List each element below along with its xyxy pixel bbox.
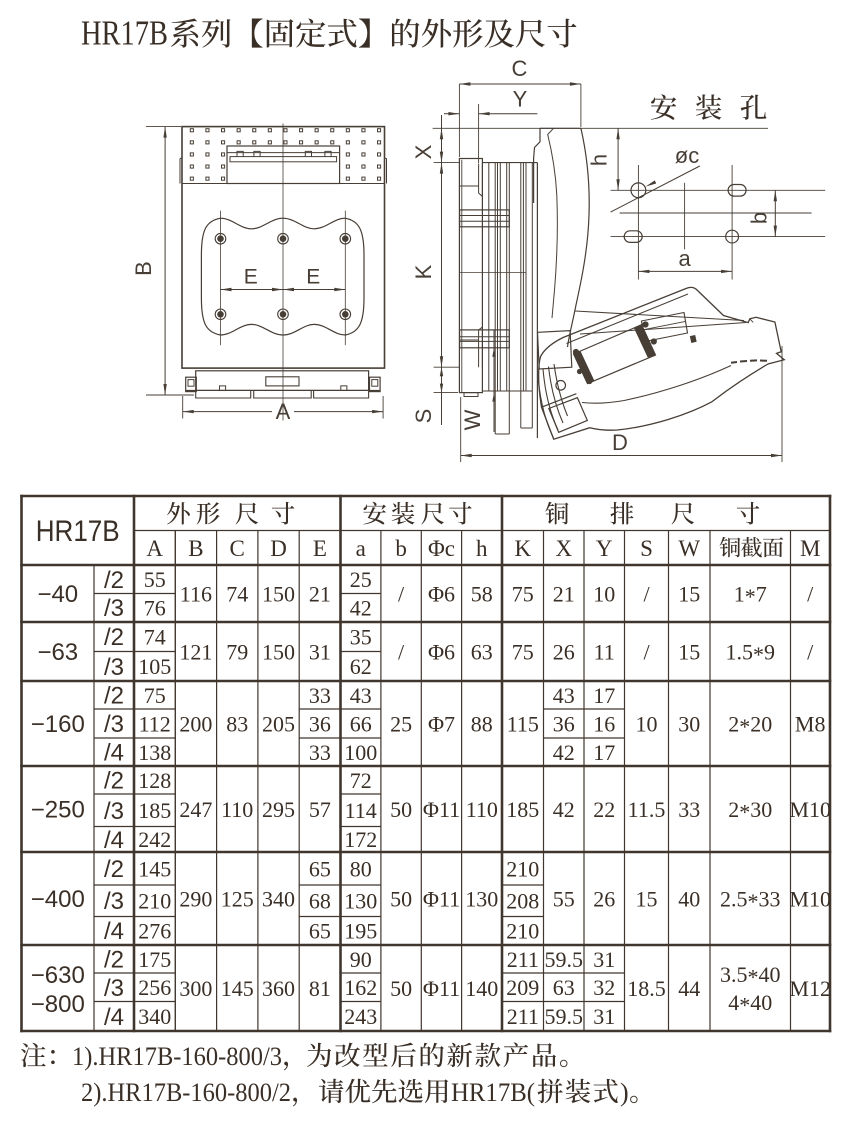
svg-text:−40: −40	[37, 581, 78, 608]
svg-text:10: 10	[593, 581, 615, 606]
svg-text:26: 26	[553, 639, 575, 664]
svg-text:C: C	[512, 56, 528, 81]
svg-text:121: 121	[179, 639, 212, 664]
svg-text:55: 55	[553, 886, 575, 911]
svg-text:62: 62	[350, 654, 372, 679]
svg-text:79: 79	[226, 639, 248, 664]
svg-text:83: 83	[226, 711, 248, 736]
svg-text:200: 200	[179, 711, 212, 736]
svg-text:68: 68	[309, 889, 331, 914]
svg-text:50: 50	[390, 886, 412, 911]
svg-text:X: X	[411, 144, 436, 159]
svg-text:36: 36	[309, 711, 331, 736]
svg-text:D: D	[270, 536, 287, 561]
svg-text:63: 63	[471, 639, 493, 664]
svg-text:/3: /3	[104, 888, 124, 915]
svg-text:HR17B(: HR17B(	[451, 1078, 535, 1107]
svg-text:−250: −250	[31, 797, 85, 824]
svg-text:/2: /2	[104, 856, 124, 883]
svg-text:2*20: 2*20	[728, 711, 772, 739]
svg-text:58: 58	[471, 581, 493, 606]
svg-text:h: h	[587, 154, 612, 166]
svg-text:242: 242	[138, 827, 171, 852]
svg-text:S: S	[411, 409, 436, 424]
svg-text:256: 256	[138, 975, 171, 1000]
svg-text:31: 31	[593, 1004, 615, 1029]
svg-text:44: 44	[678, 976, 700, 1001]
svg-text:162: 162	[344, 975, 377, 1000]
svg-text:72: 72	[350, 768, 372, 793]
svg-text:130: 130	[344, 889, 377, 914]
svg-text:110: 110	[466, 797, 498, 822]
svg-text:−630: −630	[31, 962, 85, 989]
svg-text:/4: /4	[104, 1004, 124, 1031]
svg-text:21: 21	[553, 581, 575, 606]
svg-text:211: 211	[507, 947, 539, 972]
svg-text:340: 340	[262, 886, 295, 911]
svg-text:18.5: 18.5	[627, 976, 666, 1001]
svg-text:300: 300	[179, 976, 212, 1001]
svg-text:110: 110	[221, 797, 253, 822]
svg-text:M10: M10	[789, 797, 831, 822]
svg-text:M10: M10	[789, 886, 831, 911]
svg-text:33: 33	[309, 683, 331, 708]
svg-text:2).HR17B-160-800/2: 2).HR17B-160-800/2	[81, 1078, 291, 1107]
svg-text:42: 42	[350, 596, 372, 621]
svg-text:b: b	[747, 212, 772, 224]
svg-text:22: 22	[593, 797, 615, 822]
svg-text:31: 31	[593, 947, 615, 972]
svg-text:2.5*33: 2.5*33	[720, 886, 781, 914]
svg-text:43: 43	[350, 683, 372, 708]
svg-text:/4: /4	[104, 918, 124, 945]
svg-text:205: 205	[262, 711, 295, 736]
svg-text:3.5*40: 3.5*40	[720, 962, 781, 990]
svg-text:145: 145	[221, 976, 254, 1001]
svg-text:E: E	[306, 266, 320, 289]
svg-text:125: 125	[221, 886, 254, 911]
svg-text:11: 11	[594, 639, 615, 664]
svg-text:74: 74	[144, 625, 166, 650]
svg-text:65: 65	[309, 919, 331, 944]
svg-text:138: 138	[138, 740, 171, 765]
svg-text:S: S	[640, 536, 653, 561]
svg-text:42: 42	[553, 797, 575, 822]
svg-text:10: 10	[636, 711, 658, 736]
svg-text:1.5*9: 1.5*9	[725, 639, 775, 667]
svg-text:33: 33	[678, 797, 700, 822]
svg-text:øc: øc	[675, 143, 699, 168]
svg-text:90: 90	[350, 947, 372, 972]
svg-text:b: b	[395, 536, 407, 561]
svg-text:−400: −400	[31, 886, 85, 913]
svg-text:65: 65	[309, 856, 331, 881]
svg-text:112: 112	[139, 711, 171, 736]
svg-text:16: 16	[593, 711, 615, 736]
svg-text:a: a	[356, 536, 366, 561]
svg-text:B: B	[131, 261, 156, 276]
svg-text:Y: Y	[596, 536, 613, 561]
svg-text:59.5: 59.5	[545, 1004, 584, 1029]
svg-text:50: 50	[390, 797, 412, 822]
svg-text:/: /	[807, 581, 814, 606]
svg-text:a: a	[678, 246, 691, 271]
svg-text:/2: /2	[104, 947, 124, 974]
svg-text:X: X	[555, 536, 572, 561]
svg-text:33: 33	[309, 740, 331, 765]
svg-text:360: 360	[262, 976, 295, 1001]
svg-text:/: /	[398, 639, 405, 664]
svg-text:50: 50	[390, 976, 412, 1001]
svg-text:1*7: 1*7	[734, 581, 767, 609]
svg-text:/3: /3	[104, 975, 124, 1002]
svg-text:/: /	[643, 639, 650, 664]
svg-text:/2: /2	[104, 624, 124, 651]
svg-text:55: 55	[144, 567, 166, 592]
svg-text:17: 17	[593, 683, 615, 708]
svg-text:Φ6: Φ6	[428, 639, 455, 664]
svg-text:): )	[620, 1078, 629, 1107]
svg-text:43: 43	[553, 683, 575, 708]
svg-text:66: 66	[350, 711, 372, 736]
svg-text:−160: −160	[31, 711, 85, 738]
svg-text:/2: /2	[104, 768, 124, 795]
svg-text:/2: /2	[104, 567, 124, 594]
svg-text:/: /	[398, 581, 405, 606]
svg-text:150: 150	[262, 581, 295, 606]
svg-text:15: 15	[678, 639, 700, 664]
svg-text:M12: M12	[789, 976, 831, 1001]
svg-text:185: 185	[138, 798, 171, 823]
svg-text:105: 105	[138, 654, 171, 679]
svg-text:175: 175	[138, 947, 171, 972]
svg-text:276: 276	[138, 919, 171, 944]
svg-text:31: 31	[309, 639, 331, 664]
svg-text:211: 211	[507, 1004, 539, 1029]
svg-text:Y: Y	[513, 87, 528, 112]
svg-text:145: 145	[138, 856, 171, 881]
svg-text:Φ6: Φ6	[428, 581, 455, 606]
svg-text:/4: /4	[104, 827, 124, 854]
svg-text:195: 195	[344, 919, 377, 944]
svg-text:185: 185	[506, 797, 539, 822]
svg-text:−63: −63	[37, 639, 78, 666]
svg-text:63: 63	[553, 975, 575, 1000]
svg-text:40: 40	[678, 886, 700, 911]
svg-text:Φ11: Φ11	[423, 976, 460, 1001]
svg-text:4*40: 4*40	[728, 990, 772, 1018]
svg-text:/: /	[643, 581, 650, 606]
svg-text:340: 340	[138, 1004, 171, 1029]
svg-text:116: 116	[180, 581, 212, 606]
svg-text:130: 130	[465, 886, 498, 911]
svg-text:15: 15	[636, 886, 658, 911]
svg-text:81: 81	[309, 976, 331, 1001]
svg-text:76: 76	[144, 596, 166, 621]
svg-text:30: 30	[678, 711, 700, 736]
svg-text:/: /	[807, 639, 814, 664]
svg-text:42: 42	[553, 740, 575, 765]
svg-text:B: B	[188, 536, 203, 561]
svg-text:21: 21	[309, 581, 331, 606]
svg-text:75: 75	[512, 639, 534, 664]
svg-text:114: 114	[345, 798, 377, 823]
svg-text:−800: −800	[31, 991, 85, 1018]
svg-text:A: A	[146, 536, 163, 561]
svg-text:/3: /3	[104, 654, 124, 681]
svg-text:HR17B: HR17B	[81, 14, 168, 53]
svg-text:74: 74	[226, 581, 248, 606]
svg-text:/3: /3	[104, 798, 124, 825]
svg-text:K: K	[514, 536, 531, 561]
svg-text:36: 36	[553, 711, 575, 736]
svg-text:75: 75	[512, 581, 534, 606]
svg-text:115: 115	[507, 711, 539, 736]
svg-text:Φ7: Φ7	[428, 711, 455, 736]
svg-text:25: 25	[390, 711, 412, 736]
svg-text:247: 247	[179, 797, 212, 822]
svg-text:W: W	[460, 409, 485, 430]
svg-text:Φc: Φc	[428, 536, 455, 561]
svg-text:210: 210	[506, 919, 539, 944]
svg-text:h: h	[476, 536, 488, 561]
svg-text:295: 295	[262, 797, 295, 822]
svg-text:17: 17	[593, 740, 615, 765]
svg-text:35: 35	[350, 625, 372, 650]
svg-text:209: 209	[506, 975, 539, 1000]
svg-text:210: 210	[506, 856, 539, 881]
svg-text:A: A	[276, 399, 291, 424]
svg-text:11.5: 11.5	[628, 797, 666, 822]
svg-text:D: D	[612, 430, 628, 455]
svg-text:/2: /2	[104, 683, 124, 710]
svg-text:E: E	[244, 266, 258, 289]
svg-text:C: C	[230, 536, 245, 561]
svg-text:/3: /3	[104, 595, 124, 622]
svg-text:32: 32	[593, 975, 615, 1000]
svg-text:M: M	[800, 536, 820, 561]
svg-text:W: W	[678, 536, 700, 561]
svg-text:HR17B: HR17B	[36, 515, 120, 548]
svg-text:128: 128	[138, 768, 171, 793]
svg-text:59.5: 59.5	[545, 947, 584, 972]
svg-text:M8: M8	[795, 711, 826, 736]
svg-text:80: 80	[350, 856, 372, 881]
svg-text:Φ11: Φ11	[423, 797, 460, 822]
svg-text:140: 140	[465, 976, 498, 1001]
svg-text:208: 208	[506, 889, 539, 914]
svg-text:25: 25	[350, 567, 372, 592]
svg-text:E: E	[313, 536, 327, 561]
svg-text:57: 57	[309, 797, 331, 822]
svg-text:K: K	[411, 264, 436, 279]
svg-text:2*30: 2*30	[728, 797, 772, 825]
svg-text:15: 15	[678, 581, 700, 606]
svg-text:1).HR17B-160-800/3: 1).HR17B-160-800/3	[72, 1042, 282, 1071]
svg-text:88: 88	[471, 711, 493, 736]
svg-text:75: 75	[144, 683, 166, 708]
svg-text:290: 290	[179, 886, 212, 911]
svg-text:Φ11: Φ11	[423, 886, 460, 911]
svg-text:210: 210	[138, 889, 171, 914]
svg-text:26: 26	[593, 886, 615, 911]
svg-text:/4: /4	[104, 740, 124, 767]
svg-text:243: 243	[344, 1004, 377, 1029]
svg-text:100: 100	[344, 740, 377, 765]
svg-text:172: 172	[344, 827, 377, 852]
svg-text:/3: /3	[104, 711, 124, 738]
svg-text:150: 150	[262, 639, 295, 664]
